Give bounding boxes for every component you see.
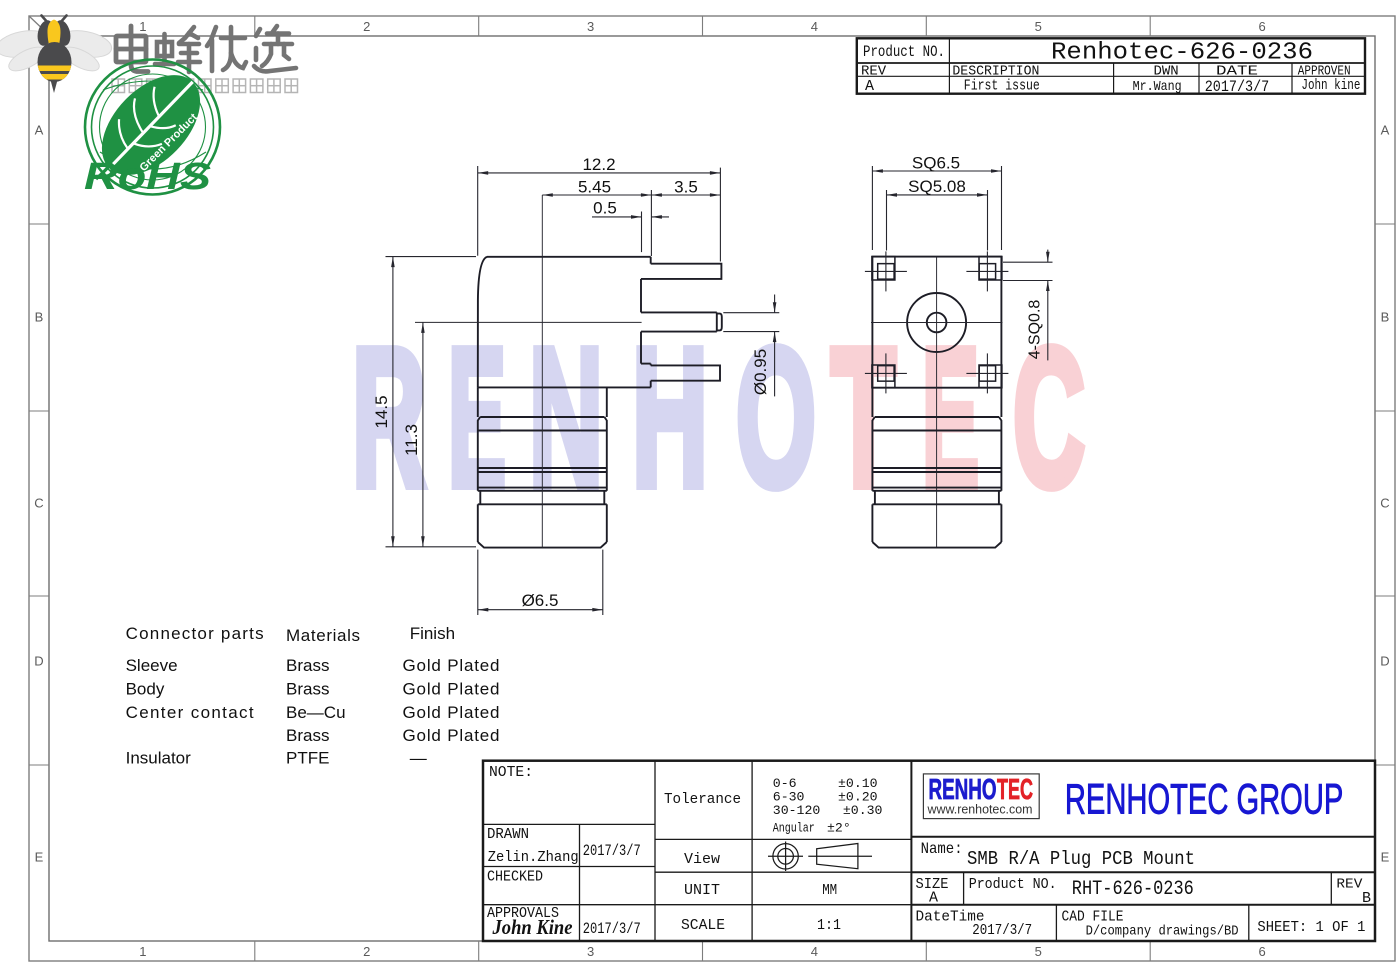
svg-text:Be—Cu: Be—Cu [286, 703, 346, 722]
svg-text:D: D [34, 654, 43, 669]
svg-text:2017/3/7: 2017/3/7 [1205, 78, 1270, 96]
svg-text:John kine: John kine [1301, 78, 1360, 94]
svg-text:C: C [1013, 308, 1085, 527]
svg-text:Connector parts: Connector parts [126, 624, 264, 643]
svg-text:14.5: 14.5 [372, 395, 391, 428]
svg-text:Name:: Name: [921, 840, 963, 858]
svg-text:Sleeve: Sleeve [126, 656, 178, 675]
svg-text:SQ6.5: SQ6.5 [912, 153, 960, 172]
svg-text:Zelin.Zhang: Zelin.Zhang [488, 849, 579, 866]
svg-text:±2°: ±2° [827, 821, 851, 836]
svg-text:A: A [929, 890, 938, 907]
svg-text:First issue: First issue [964, 79, 1040, 95]
svg-text:2: 2 [363, 944, 370, 959]
svg-text:5: 5 [1035, 944, 1042, 959]
svg-text:2017/3/7: 2017/3/7 [583, 842, 641, 860]
svg-text:4-SQ0.8: 4-SQ0.8 [1027, 300, 1044, 360]
svg-text:RHT-626-0236: RHT-626-0236 [1072, 878, 1194, 901]
svg-text:CHECKED: CHECKED [487, 870, 543, 886]
svg-text:RENHOTEC GROUP: RENHOTEC GROUP [1065, 776, 1343, 824]
svg-text:B: B [1381, 310, 1390, 325]
svg-text:D/company drawings/BD: D/company drawings/BD [1086, 924, 1239, 940]
svg-text:2017/3/7: 2017/3/7 [583, 920, 641, 938]
svg-text:B: B [1362, 890, 1371, 907]
svg-text:1:1: 1:1 [817, 917, 841, 934]
svg-text:6: 6 [1258, 19, 1265, 34]
svg-text:Product NO.: Product NO. [969, 876, 1057, 893]
svg-text:www.renhotec.com: www.renhotec.com [927, 802, 1033, 817]
svg-text:2: 2 [363, 19, 370, 34]
svg-text:Brass: Brass [286, 680, 329, 699]
svg-text:±0.30: ±0.30 [843, 803, 883, 818]
svg-text:SCALE: SCALE [681, 917, 725, 934]
svg-text:Insulator: Insulator [126, 749, 192, 768]
svg-text:B: B [35, 310, 44, 325]
svg-text:6: 6 [1258, 944, 1265, 959]
svg-text:A: A [865, 78, 874, 95]
svg-text:0.5: 0.5 [593, 199, 617, 218]
svg-text:E: E [1381, 850, 1390, 865]
svg-text:2017/3/7: 2017/3/7 [972, 922, 1032, 939]
svg-text:Angular: Angular [773, 821, 815, 836]
svg-text:3: 3 [587, 19, 594, 34]
svg-text:Brass: Brass [286, 656, 329, 675]
svg-text:REV: REV [1336, 877, 1363, 893]
svg-text:View: View [684, 851, 720, 868]
svg-text:1: 1 [139, 944, 146, 959]
svg-text:UNIT: UNIT [684, 882, 720, 899]
svg-text:4: 4 [811, 19, 818, 34]
svg-text:SMB R/A Plug PCB Mount: SMB R/A Plug PCB Mount [967, 848, 1195, 870]
svg-text:John Kine: John Kine [492, 915, 573, 939]
svg-text:Gold Plated: Gold Plated [403, 703, 500, 722]
svg-text:A: A [35, 123, 44, 138]
svg-text:1: 1 [139, 19, 146, 34]
svg-text:MM: MM [822, 882, 837, 899]
svg-text:Gold Plated: Gold Plated [403, 680, 500, 699]
svg-text:E: E [35, 850, 44, 865]
svg-text:Ø6.5: Ø6.5 [522, 591, 559, 610]
svg-text:Brass: Brass [286, 726, 329, 745]
svg-text:RoHS: RoHS [84, 156, 211, 198]
svg-text:SHEET: 1 OF 1: SHEET: 1 OF 1 [1257, 919, 1365, 936]
svg-text:C: C [34, 496, 43, 511]
svg-text:Gold Plated: Gold Plated [403, 726, 500, 745]
svg-text:C: C [1380, 496, 1389, 511]
svg-text:DESCRIPTION: DESCRIPTION [952, 64, 1039, 80]
svg-text:12.2: 12.2 [582, 155, 615, 174]
svg-text:Product NO.: Product NO. [863, 43, 945, 61]
svg-text:4: 4 [811, 944, 818, 959]
svg-text:5: 5 [1035, 19, 1042, 34]
svg-text:3: 3 [587, 944, 594, 959]
svg-text:30-120: 30-120 [773, 803, 821, 818]
svg-text:5.45: 5.45 [578, 177, 611, 196]
svg-text:H: H [632, 308, 708, 527]
svg-text:Ø0.95: Ø0.95 [751, 349, 770, 395]
svg-text:Mr.Wang: Mr.Wang [1133, 79, 1182, 95]
svg-text:Tolerance: Tolerance [664, 791, 741, 808]
svg-text:D: D [1380, 654, 1389, 669]
svg-text:3.5: 3.5 [674, 177, 698, 196]
svg-text:DRAWN: DRAWN [487, 827, 529, 843]
svg-text:Finish: Finish [410, 624, 455, 643]
svg-text:Gold Plated: Gold Plated [403, 656, 500, 675]
svg-text:—: — [410, 749, 427, 768]
svg-text:A: A [1381, 123, 1390, 138]
svg-text:DWN: DWN [1154, 64, 1179, 80]
svg-text:PTFE: PTFE [286, 749, 329, 768]
svg-text:11.3: 11.3 [402, 424, 421, 456]
svg-text:SQ5.08: SQ5.08 [908, 177, 966, 196]
svg-text:Materials: Materials [286, 626, 360, 645]
svg-text:Renhotec-626-0236: Renhotec-626-0236 [1051, 40, 1313, 67]
svg-text:Body: Body [126, 680, 165, 699]
svg-text:NOTE:: NOTE: [489, 765, 533, 781]
